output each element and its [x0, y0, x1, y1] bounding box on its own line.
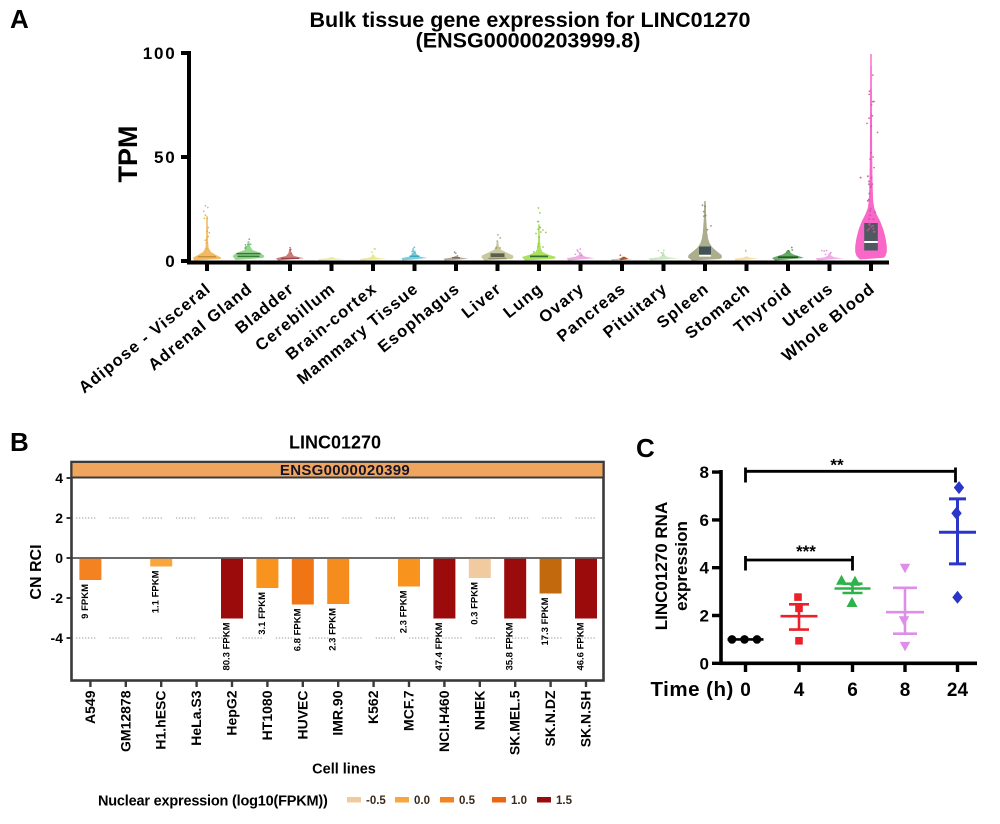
svg-text:NHEK: NHEK: [471, 691, 487, 731]
svg-text:47.4 FPKM: 47.4 FPKM: [434, 622, 445, 670]
svg-text:Nuclear expression (log10(FPKM: Nuclear expression (log10(FPKM)): [98, 794, 328, 810]
svg-text:ENSG0000020399: ENSG0000020399: [280, 462, 410, 479]
svg-text:8: 8: [700, 463, 709, 482]
svg-text:MCF.7: MCF.7: [401, 690, 417, 731]
svg-text:3.1 FPKM: 3.1 FPKM: [257, 592, 268, 635]
svg-text:A: A: [10, 4, 29, 34]
svg-text:(ENSG00000203999.8): (ENSG00000203999.8): [416, 29, 641, 53]
svg-text:HeLa.S3: HeLa.S3: [188, 690, 204, 745]
svg-text:SK.MEL.5: SK.MEL.5: [507, 690, 523, 755]
svg-text:0.5: 0.5: [459, 795, 476, 807]
svg-text:CN RCI: CN RCI: [28, 544, 45, 599]
svg-text:6: 6: [847, 680, 858, 701]
svg-text:**: **: [830, 456, 844, 475]
svg-text:HT1080: HT1080: [259, 690, 275, 740]
svg-text:1.5: 1.5: [556, 795, 573, 807]
svg-text:LINC01270: LINC01270: [289, 433, 381, 453]
svg-text:Time (h): Time (h): [651, 678, 734, 701]
svg-text:2.3 FPKM: 2.3 FPKM: [399, 590, 410, 633]
svg-text:NCI.H460: NCI.H460: [436, 690, 452, 752]
svg-text:0: 0: [165, 252, 176, 271]
svg-text:4: 4: [794, 680, 805, 701]
svg-text:LINC01270 RNA: LINC01270 RNA: [652, 502, 671, 631]
svg-text:HUVEC: HUVEC: [294, 691, 310, 740]
svg-text:Cell lines: Cell lines: [312, 762, 376, 778]
svg-text:17.3 FPKM: 17.3 FPKM: [540, 597, 551, 645]
svg-text:2.3 FPKM: 2.3 FPKM: [328, 608, 339, 651]
svg-text:0: 0: [55, 550, 63, 566]
svg-text:0.0: 0.0: [414, 795, 430, 807]
svg-text:C: C: [636, 433, 655, 463]
svg-text:1.1 FPKM: 1.1 FPKM: [151, 570, 162, 613]
svg-text:0.3 FPKM: 0.3 FPKM: [469, 582, 480, 625]
svg-text:-2: -2: [51, 590, 64, 606]
svg-text:TPM: TPM: [113, 126, 143, 183]
svg-text:A549: A549: [82, 690, 98, 724]
svg-text:B: B: [10, 427, 29, 457]
svg-text:expression: expression: [672, 521, 691, 611]
svg-text:8: 8: [900, 680, 911, 701]
svg-text:9 FPKM: 9 FPKM: [80, 584, 91, 619]
svg-text:6.8 FPKM: 6.8 FPKM: [292, 608, 303, 651]
svg-text:IMR.90: IMR.90: [330, 690, 346, 735]
svg-text:50: 50: [154, 148, 177, 167]
svg-text:***: ***: [796, 542, 816, 561]
svg-text:K562: K562: [365, 690, 381, 724]
svg-text:100: 100: [143, 44, 177, 63]
svg-text:SK.N.DZ: SK.N.DZ: [542, 690, 558, 746]
svg-text:2: 2: [55, 510, 63, 526]
svg-text:0: 0: [700, 654, 709, 673]
svg-text:80.3 FPKM: 80.3 FPKM: [222, 622, 233, 670]
svg-text:GM12878: GM12878: [117, 690, 133, 752]
svg-text:35.8 FPKM: 35.8 FPKM: [505, 622, 516, 670]
svg-text:HepG2: HepG2: [224, 690, 240, 735]
svg-text:24: 24: [947, 680, 969, 701]
svg-text:0: 0: [740, 680, 751, 701]
svg-text:-4: -4: [51, 630, 64, 646]
svg-text:6: 6: [700, 511, 709, 530]
svg-text:H1.hESC: H1.hESC: [153, 691, 169, 750]
svg-text:4: 4: [700, 559, 710, 578]
svg-text:-0.5: -0.5: [366, 795, 386, 807]
svg-text:1.0: 1.0: [511, 795, 527, 807]
svg-text:46.6 FPKM: 46.6 FPKM: [576, 622, 587, 670]
svg-text:SK.N.SH: SK.N.SH: [578, 691, 594, 748]
svg-text:2: 2: [700, 607, 709, 626]
svg-text:4: 4: [55, 470, 63, 486]
